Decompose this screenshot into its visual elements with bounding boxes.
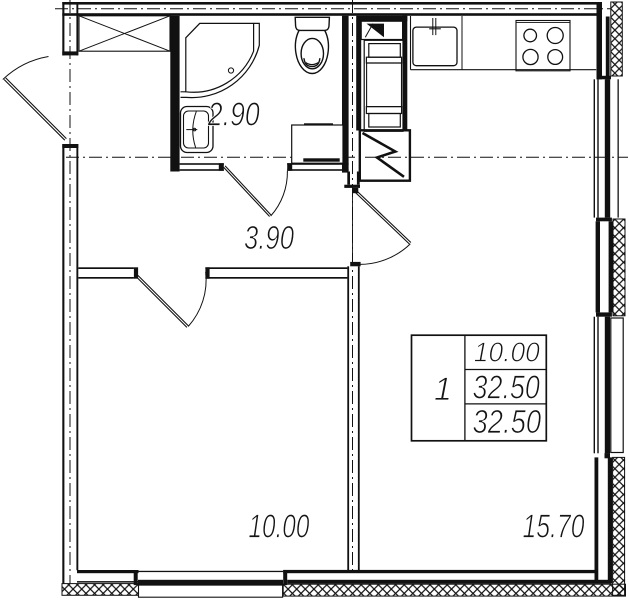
svg-text:1: 1 xyxy=(434,371,452,407)
svg-text:10.00: 10.00 xyxy=(474,337,540,368)
svg-text:15.70: 15.70 xyxy=(523,508,585,545)
svg-text:32.50: 32.50 xyxy=(473,369,541,406)
svg-text:3.90: 3.90 xyxy=(244,219,294,256)
svg-text:2.90: 2.90 xyxy=(207,96,260,133)
svg-text:10.00: 10.00 xyxy=(248,508,309,545)
svg-text:32.50: 32.50 xyxy=(473,403,542,440)
